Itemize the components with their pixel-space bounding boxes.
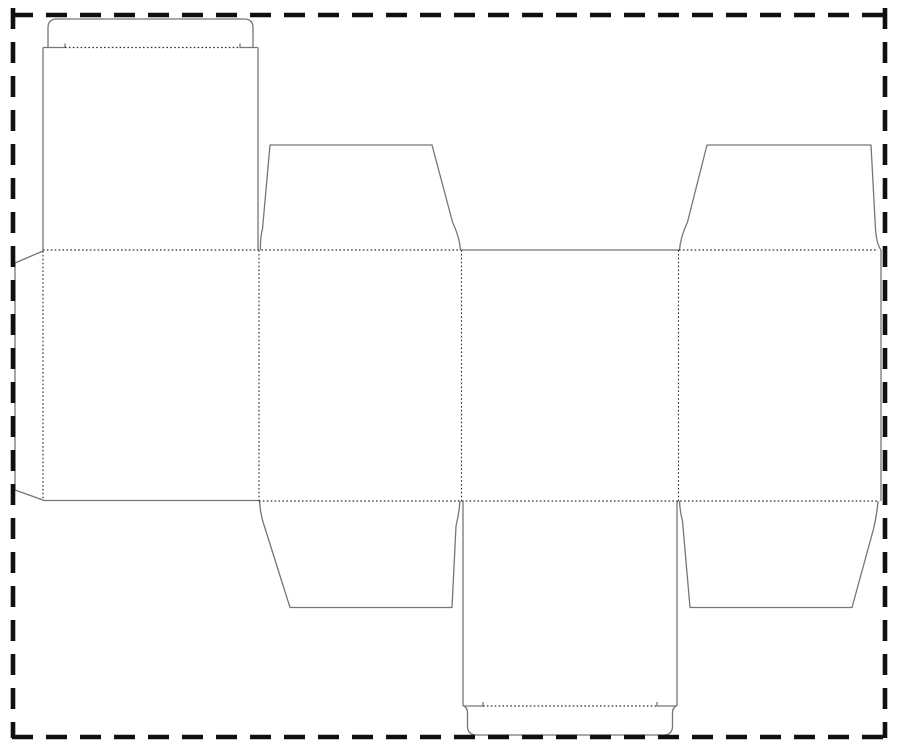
top-tuck-shoulder-left xyxy=(43,44,65,48)
top-dust-flap-right xyxy=(680,145,882,250)
bottom-dust-flap-left xyxy=(260,501,461,608)
top-tuck-flap xyxy=(48,19,253,48)
top-dust-flap-left xyxy=(260,145,460,250)
glue-flap xyxy=(15,251,43,500)
cut-lines xyxy=(15,19,881,735)
bottom-tuck-flap xyxy=(464,706,676,735)
bottom-dust-flap-right xyxy=(680,501,879,608)
top-tuck-shoulder-right xyxy=(240,44,258,48)
bottom-tuck-shoulder-left xyxy=(463,702,483,706)
bottom-tuck-shoulder-right xyxy=(657,702,677,706)
dieline-svg xyxy=(0,0,900,753)
dashed-bleed-border xyxy=(12,8,886,738)
box-template-diagram xyxy=(0,0,900,753)
